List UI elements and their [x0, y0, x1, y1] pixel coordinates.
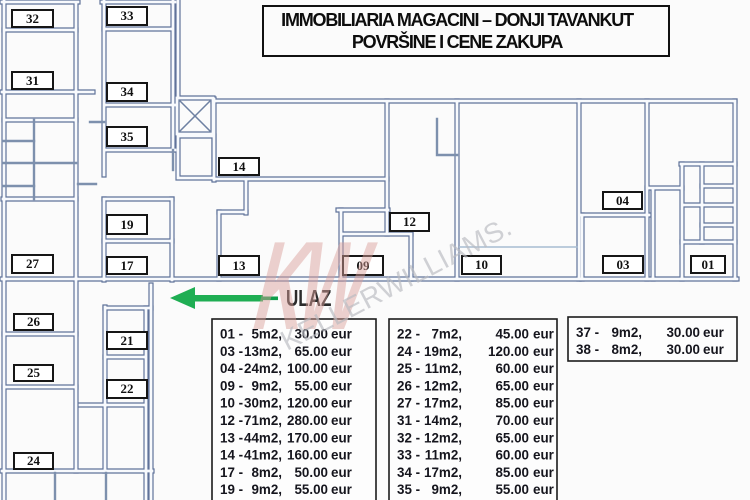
- svg-text:ULAZ: ULAZ: [286, 287, 331, 312]
